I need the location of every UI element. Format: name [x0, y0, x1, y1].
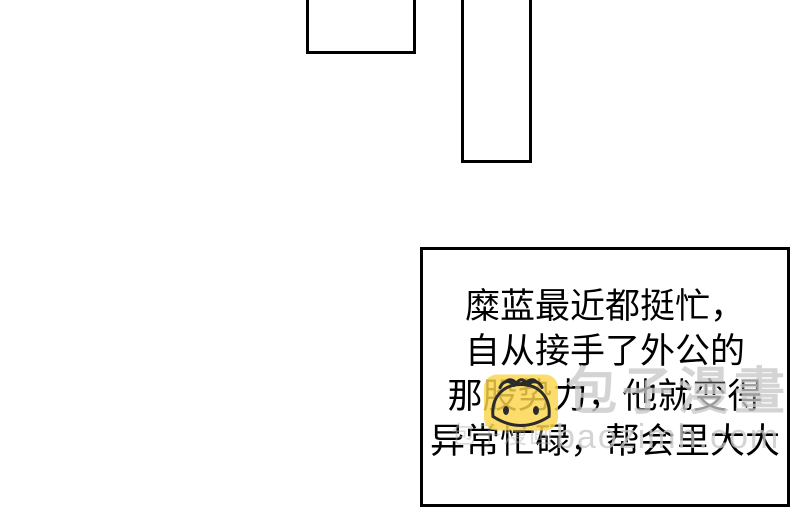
speech-line: 异常忙碌，帮会里大大 [423, 419, 787, 464]
bun-icon [484, 374, 558, 431]
speech-text-box: 糜蓝最近都挺忙， 自从接手了外公的 那股势力，他就变得 异常忙碌，帮会里大大 [420, 247, 790, 507]
comic-panel-top [306, 0, 416, 54]
speech-text: 糜蓝最近都挺忙， 自从接手了外公的 那股势力，他就变得 异常忙碌，帮会里大大 [423, 250, 787, 464]
comic-panel-tall [461, 0, 532, 163]
speech-line: 那股势力，他就变得 [423, 374, 787, 419]
baozi-mascot-badge [484, 374, 558, 431]
speech-line: 糜蓝最近都挺忙， [423, 284, 787, 329]
speech-line: 自从接手了外公的 [423, 329, 787, 374]
